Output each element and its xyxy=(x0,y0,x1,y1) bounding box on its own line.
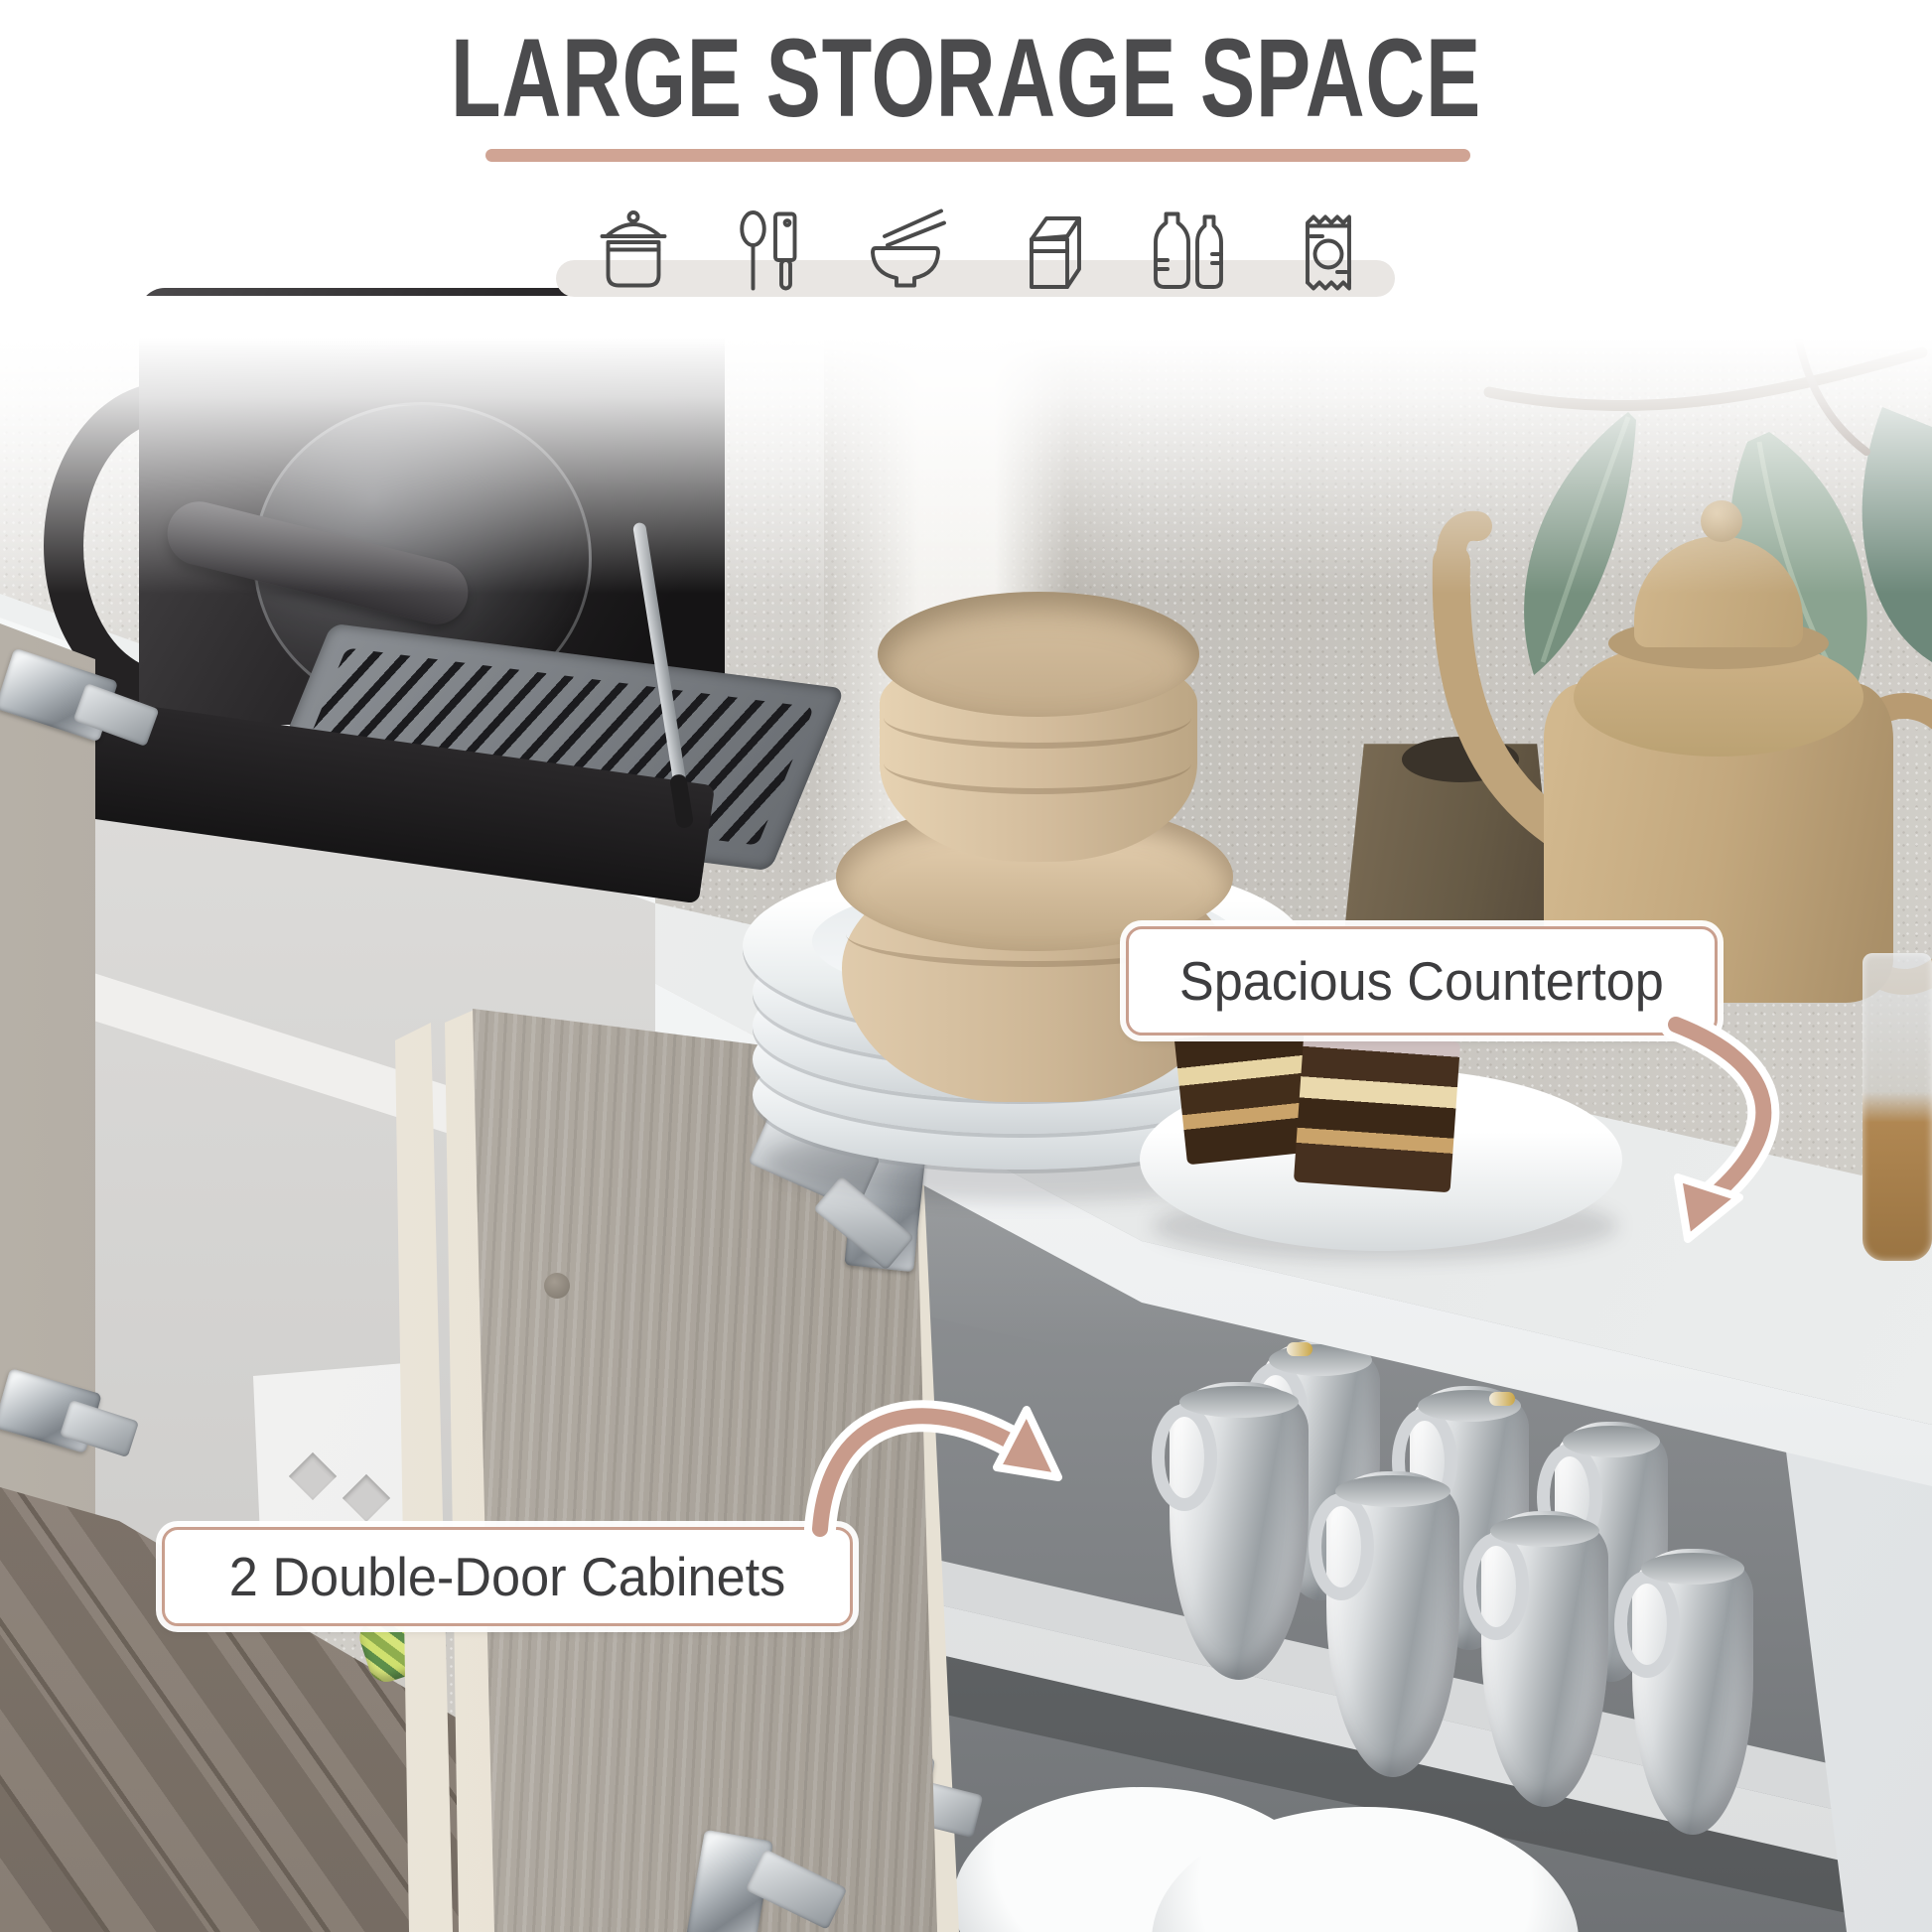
milk-carton-icon xyxy=(1005,202,1100,301)
title-accent-underline xyxy=(485,149,1470,162)
drinking-glass xyxy=(1863,953,1932,1261)
small-bowl-stack xyxy=(878,592,1199,899)
cake-slice xyxy=(1294,1032,1460,1193)
bowl-opening xyxy=(878,592,1199,717)
page-title: LARGE STORAGE SPACE xyxy=(251,14,1681,142)
bowl-rim xyxy=(884,733,1191,794)
product-marketing-image: Spacious Countertop 2 Double-Door Cabine… xyxy=(0,0,1932,1932)
callout-cabinets-text: 2 Double-Door Cabinets xyxy=(229,1545,786,1608)
water-bottles-icon xyxy=(1141,202,1236,301)
espresso-machine xyxy=(30,288,834,864)
callout-countertop: Spacious Countertop xyxy=(1126,926,1718,1035)
callout-cabinets: 2 Double-Door Cabinets xyxy=(162,1527,853,1626)
teapot-knob xyxy=(1701,500,1742,542)
icon-strip-background xyxy=(556,260,1395,297)
shelf-pin xyxy=(1287,1342,1312,1356)
shelf-pin xyxy=(1489,1392,1515,1406)
snack-bag-icon xyxy=(1281,202,1376,301)
bowl-with-chopsticks-icon xyxy=(858,202,953,301)
callout-countertop-text: Spacious Countertop xyxy=(1179,949,1664,1013)
cooking-pot-icon xyxy=(586,202,681,301)
spoon-and-cleaver-icon xyxy=(722,202,817,301)
door-cam-cap xyxy=(544,1273,570,1299)
